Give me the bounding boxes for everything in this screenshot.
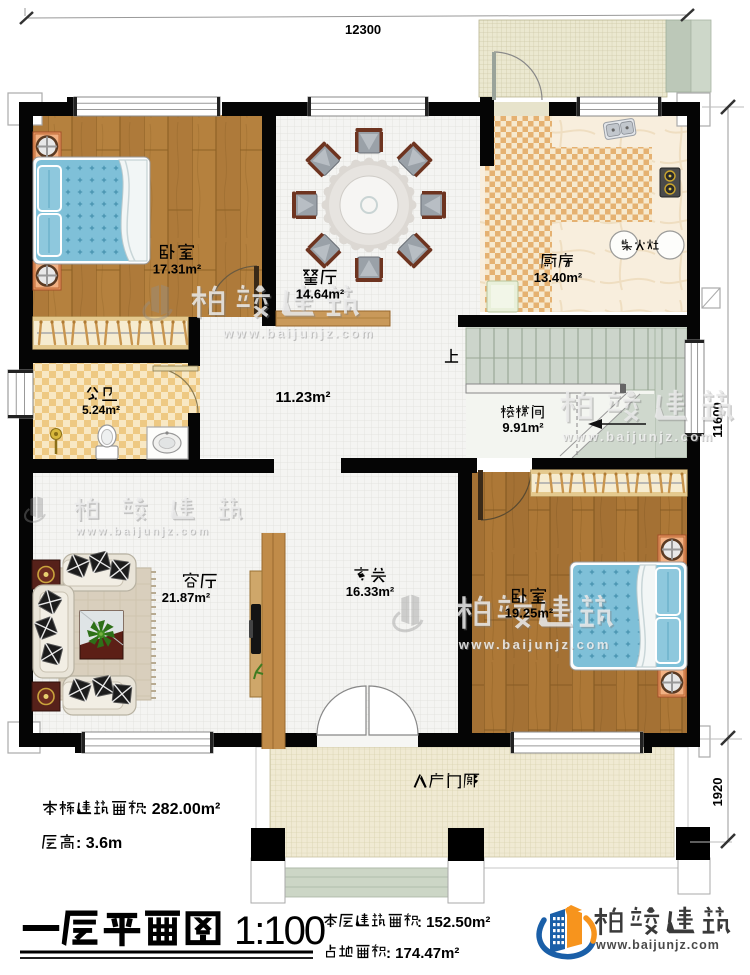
svg-text:: 174.47m²: : 174.47m² — [386, 945, 459, 962]
svg-text:13.40m²: 13.40m² — [534, 270, 583, 285]
svg-text:11.23m²: 11.23m² — [275, 389, 330, 406]
svg-text:: 3.6m: : 3.6m — [76, 835, 122, 852]
svg-text:: 282.00m²: : 282.00m² — [142, 801, 220, 818]
svg-text:21.87m²: 21.87m² — [162, 590, 211, 605]
svg-text:www.baijunjz.com: www.baijunjz.com — [562, 429, 715, 444]
svg-text:www.baijunjz.com: www.baijunjz.com — [222, 326, 375, 341]
svg-text:19.25m²: 19.25m² — [505, 606, 554, 621]
svg-text:12300: 12300 — [345, 22, 381, 37]
svg-text:1920: 1920 — [710, 778, 725, 807]
svg-text:14.64m²: 14.64m² — [296, 287, 345, 302]
svg-text:1:100: 1:100 — [234, 909, 325, 953]
svg-text:www.baijunjz.com: www.baijunjz.com — [458, 637, 611, 652]
svg-text:5.24m²: 5.24m² — [82, 403, 120, 417]
svg-text:www.baijunjz.com: www.baijunjz.com — [595, 938, 720, 952]
svg-text:: 152.50m²: : 152.50m² — [417, 914, 490, 931]
svg-text:16.33m²: 16.33m² — [346, 584, 395, 599]
svg-text:17.31m²: 17.31m² — [153, 262, 202, 277]
svg-text:9.91m²: 9.91m² — [502, 420, 544, 435]
svg-text:www.baijunjz.com: www.baijunjz.com — [75, 526, 211, 538]
